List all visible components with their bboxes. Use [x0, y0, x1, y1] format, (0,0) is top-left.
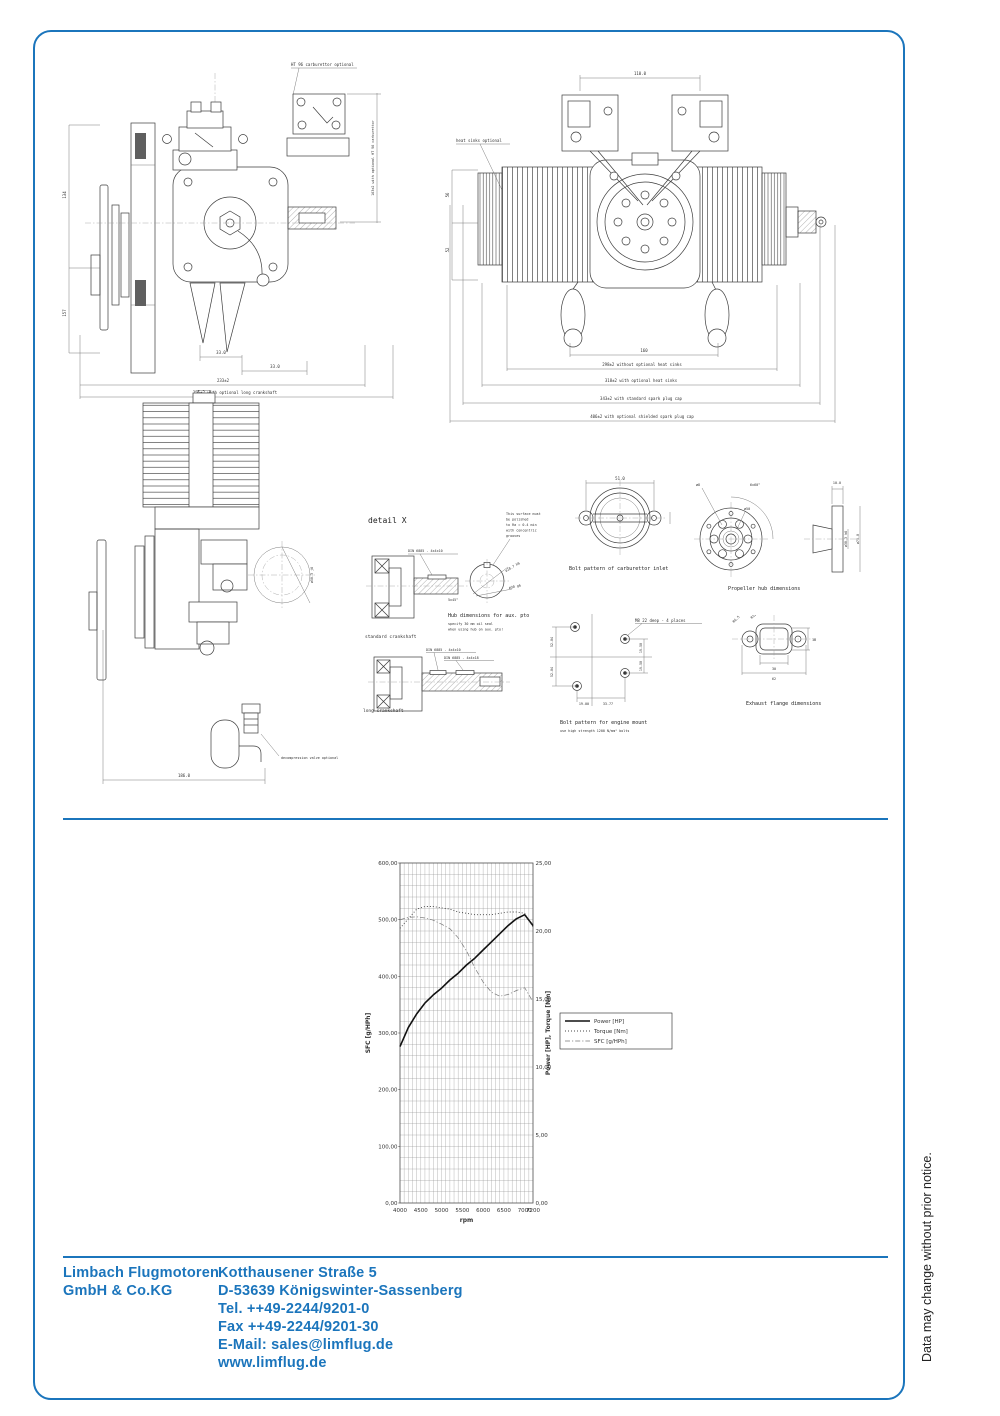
crankcase-body	[89, 507, 259, 680]
standard-crankshaft-caption: standard crankshaft	[365, 634, 417, 640]
svg-text:52.04: 52.04	[550, 637, 554, 647]
svg-text:5000: 5000	[435, 1208, 449, 1214]
svg-text:5,00: 5,00	[536, 1133, 549, 1139]
prop-flange	[91, 185, 129, 330]
dimension-lines: 186.0	[103, 630, 265, 784]
footer-company: Limbach Flugmotoren GmbH & Co.KG	[63, 1264, 219, 1300]
svg-text:DIN 6885 - 4x4x18: DIN 6885 - 4x4x18	[444, 656, 479, 660]
svg-text:186.0: 186.0	[178, 773, 191, 778]
svg-text:Power [HP], Torque [Nm]: Power [HP], Torque [Nm]	[545, 991, 552, 1076]
drawing-prop-hub: 6x60° ø8 ø50 10.0 ø30.3 h6 ø75.0 Propell…	[690, 450, 885, 600]
carb-note-label: HT 96 carburettor optional	[291, 62, 354, 67]
website-line: www.limflug.de	[218, 1354, 463, 1372]
svg-text:52: 52	[445, 247, 450, 252]
svg-text:This surface must: This surface must	[506, 512, 541, 516]
hub-front-view: 6x60° ø8 ø50	[694, 483, 773, 578]
svg-text:300,00: 300,00	[378, 1031, 398, 1037]
svg-text:R6.5: R6.5	[732, 615, 741, 624]
phone-line: Tel. ++49-2244/9201-0	[218, 1300, 463, 1318]
divider-footer	[63, 1256, 888, 1258]
svg-text:4000: 4000	[393, 1208, 407, 1214]
carburetor-assembly	[163, 73, 248, 170]
crankcase	[590, 153, 700, 288]
svg-text:298±2 without optional heat si: 298±2 without optional heat sinks	[602, 362, 682, 367]
hub-side-view: 10.0 ø30.3 h6 ø75.0	[804, 481, 860, 572]
engine-mount-note: use high strength 1200 N/mm² bolts	[560, 729, 629, 733]
svg-text:100,00: 100,00	[378, 1144, 398, 1150]
svg-text:0,00: 0,00	[385, 1201, 398, 1207]
svg-text:157: 157	[62, 309, 67, 317]
muffler-assembly: decompression valve optional	[211, 704, 338, 768]
mount-wedges	[190, 283, 245, 352]
detail-x-title: detail X	[368, 516, 407, 525]
svg-text:heat sinks optional: heat sinks optional	[456, 138, 502, 143]
svg-text:52.04: 52.04	[550, 667, 554, 677]
svg-text:5x45°: 5x45°	[448, 598, 458, 602]
svg-text:500,00: 500,00	[378, 918, 398, 924]
svg-text:18: 18	[812, 638, 816, 642]
svg-text:R12.5: R12.5	[750, 615, 760, 620]
svg-text:51.0: 51.0	[615, 476, 625, 481]
exhaust-flange-caption: Exhaust flange dimensions	[746, 701, 821, 707]
cylinder-fins	[143, 390, 259, 507]
svg-text:ø18.7 h6: ø18.7 h6	[505, 561, 521, 573]
datasheet-page: { "page": { "side_note": "Data may chang…	[0, 0, 1000, 1416]
svg-text:62: 62	[772, 677, 776, 681]
svg-text:33.0: 33.0	[216, 350, 226, 355]
svg-text:4500: 4500	[414, 1208, 428, 1214]
svg-text:318±2 with optional heat sinks: 318±2 with optional heat sinks	[605, 378, 678, 383]
svg-text:M8 22 deep - 4 places: M8 22 deep - 4 places	[635, 618, 686, 623]
svg-text:20,00: 20,00	[536, 929, 552, 935]
drawing-rear-view: ø50.3 j6 decompression valve optional 18…	[85, 390, 375, 810]
carburetor-detail-inset: HT 96 carburettor optional 163±2 with op…	[287, 62, 381, 223]
svg-text:to Ra = 0.4 min: to Ra = 0.4 min	[506, 523, 537, 527]
svg-text:ø8: ø8	[696, 483, 700, 487]
svg-text:134: 134	[62, 191, 67, 199]
svg-text:6000: 6000	[476, 1208, 490, 1214]
svg-text:grooves: grooves	[506, 534, 520, 538]
address-city: D-53639 Königswinter-Sassenberg	[218, 1282, 463, 1300]
svg-text:DIN 6885 - 4x4x10: DIN 6885 - 4x4x10	[426, 648, 461, 652]
svg-text:200,00: 200,00	[378, 1088, 398, 1094]
svg-text:decompression valve optional: decompression valve optional	[281, 756, 338, 760]
svg-text:with concentric: with concentric	[506, 529, 537, 533]
aux-pto-caption: Hub dimensions for aux. pto	[448, 613, 529, 619]
svg-text:ø30.3 h6: ø30.3 h6	[844, 531, 848, 547]
svg-text:be polished: be polished	[506, 518, 528, 522]
standard-crankshaft-section: DIN 6885 - 4x4x10 5x45° standard cranksh…	[365, 549, 468, 640]
drawing-carb-inlet: 51.0 Bolt pattern of carburettor inlet	[555, 460, 705, 580]
dimension-lines: R6.5 R12.5 18 30 62	[732, 615, 816, 681]
svg-text:19.50: 19.50	[639, 661, 643, 671]
svg-text:30: 30	[772, 667, 776, 671]
svg-text:25,00: 25,00	[536, 861, 552, 867]
flange-outline	[732, 615, 816, 659]
aux-pto-hub: This surface must be polished to Ra = 0.…	[448, 512, 541, 632]
svg-text:ø30 g6: ø30 g6	[508, 584, 521, 590]
svg-text:19.00: 19.00	[579, 702, 589, 706]
svg-text:rpm: rpm	[460, 1217, 474, 1224]
engine-mount-caption: Bolt pattern for engine mount	[560, 720, 647, 726]
dimension-lines: 51.0	[586, 476, 670, 524]
svg-text:6500: 6500	[497, 1208, 511, 1214]
svg-text:10.0: 10.0	[833, 481, 841, 485]
svg-text:ø75.0: ø75.0	[856, 534, 860, 544]
engine-column	[131, 123, 155, 373]
svg-text:406±2 with optional shielded s: 406±2 with optional shielded spark plug …	[590, 414, 694, 419]
carburetor-cluster	[189, 540, 247, 655]
footer-address: Kotthausener Straße 5 D-53639 Königswint…	[218, 1264, 463, 1372]
svg-text:233±2: 233±2	[217, 378, 230, 383]
svg-text:6x60°: 6x60°	[750, 483, 760, 487]
svg-text:specify 30 mm oil seal: specify 30 mm oil seal	[448, 622, 493, 626]
svg-text:Power [HP]: Power [HP]	[594, 1019, 624, 1025]
svg-text:5500: 5500	[455, 1208, 469, 1214]
intake-mufflers	[561, 282, 729, 347]
side-note: Data may change without prior notice.	[920, 1152, 934, 1362]
gearbox-housing	[173, 167, 288, 286]
svg-text:when using hub on aux. pto!: when using hub on aux. pto!	[448, 628, 503, 632]
long-crankshaft-caption: long crankshaft	[363, 708, 404, 714]
email-line: E-Mail: sales@limflug.de	[218, 1336, 463, 1354]
address-street: Kotthausener Straße 5	[218, 1264, 463, 1282]
company-name-line1: Limbach Flugmotoren	[63, 1264, 219, 1282]
svg-text:33.77: 33.77	[603, 702, 613, 706]
divider-top	[63, 818, 888, 820]
svg-text:SFC [g/HPh]: SFC [g/HPh]	[594, 1039, 627, 1045]
svg-text:400,00: 400,00	[378, 974, 398, 980]
output-hub-circle: ø50.3 j6	[248, 541, 316, 609]
carb-inlet-caption: Bolt pattern of carburettor inlet	[569, 566, 668, 572]
prop-hub-caption: Propeller hub dimensions	[728, 586, 800, 592]
drawing-exhaust-flange: R6.5 R12.5 18 30 62 Exhaust flange dimen…	[710, 615, 880, 715]
svg-text:19.50: 19.50	[639, 643, 643, 653]
svg-text:7200: 7200	[526, 1208, 540, 1214]
svg-text:160: 160	[640, 348, 648, 353]
carb-height-dim: 163±2 with optional HT 96 carburettor	[371, 120, 375, 196]
company-name-line2: GmbH & Co.KG	[63, 1282, 219, 1300]
svg-text:DIN 6885 - 4x4x10: DIN 6885 - 4x4x10	[408, 549, 443, 553]
svg-text:110.0: 110.0	[634, 71, 647, 76]
fax-line: Fax ++49-2244/9201-30	[218, 1318, 463, 1336]
drawing-front-view: heat sinks optional	[440, 55, 890, 435]
svg-text:56: 56	[445, 192, 450, 197]
drawing-side-view: HT 96 carburettor optional 163±2 with op…	[55, 55, 405, 400]
performance-chart: 0,00100,00200,00300,00400,00500,00600,00…	[360, 853, 680, 1225]
drawing-engine-mount: M8 22 deep - 4 places 52.04 52.04 19.50 …	[530, 610, 715, 745]
svg-text:SFC [g/HPh]: SFC [g/HPh]	[365, 1012, 372, 1053]
svg-text:343±2 with standard spark plug: 343±2 with standard spark plug cap	[600, 396, 682, 401]
svg-text:Torque [Nm]: Torque [Nm]	[593, 1029, 628, 1035]
long-crankshaft-section: DIN 6885 - 4x4x10 DIN 6885 - 4x4x18 long…	[363, 648, 510, 714]
svg-text:600,00: 600,00	[378, 861, 398, 867]
svg-text:ø50: ø50	[744, 507, 750, 511]
flange-face	[575, 480, 665, 556]
svg-text:ø50.3 j6: ø50.3 j6	[310, 567, 314, 583]
svg-text:0,00: 0,00	[536, 1201, 549, 1207]
svg-text:33.0: 33.0	[270, 364, 280, 369]
